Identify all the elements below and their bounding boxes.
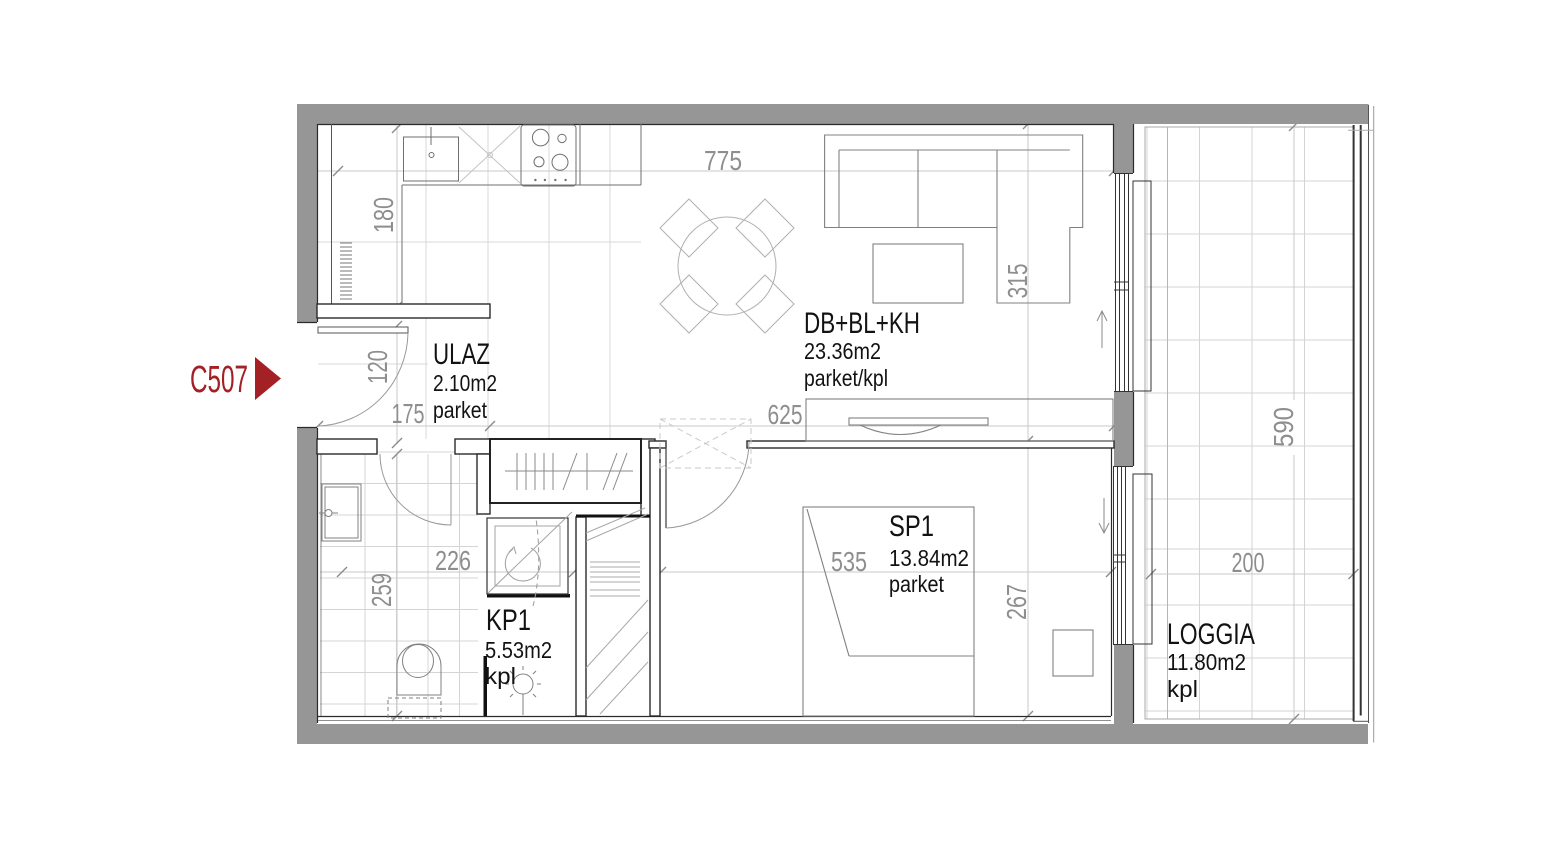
svg-text:226: 226: [435, 545, 471, 576]
svg-text:259: 259: [366, 573, 397, 607]
svg-text:775: 775: [704, 145, 742, 176]
svg-text:535: 535: [831, 546, 867, 577]
svg-text:KP1: KP1: [486, 604, 531, 637]
svg-text:13.84m2: 13.84m2: [889, 545, 969, 571]
svg-text:2.10m2: 2.10m2: [433, 370, 497, 396]
svg-text:ULAZ: ULAZ: [433, 338, 490, 371]
svg-text:180: 180: [368, 197, 399, 233]
svg-text:11.80m2: 11.80m2: [1167, 649, 1246, 675]
svg-text:parket: parket: [433, 397, 488, 423]
svg-text:5.53m2: 5.53m2: [485, 637, 552, 663]
svg-text:LOGGIA: LOGGIA: [1167, 618, 1255, 651]
svg-text:parket/kpl: parket/kpl: [804, 365, 888, 391]
svg-text:200: 200: [1232, 547, 1265, 578]
svg-text:23.36m2: 23.36m2: [804, 338, 881, 364]
svg-text:C507: C507: [190, 359, 248, 401]
svg-text:267: 267: [1001, 584, 1032, 620]
svg-text:SP1: SP1: [889, 510, 934, 543]
svg-text:parket: parket: [889, 571, 945, 597]
svg-text:kpl: kpl: [485, 663, 516, 689]
svg-text:kpl: kpl: [1167, 676, 1198, 702]
svg-text:DB+BL+KH: DB+BL+KH: [804, 307, 920, 340]
svg-text:625: 625: [768, 399, 803, 430]
svg-text:120: 120: [362, 350, 393, 384]
svg-text:590: 590: [1268, 407, 1299, 447]
svg-text:175: 175: [392, 398, 425, 429]
svg-text:315: 315: [1002, 264, 1033, 299]
